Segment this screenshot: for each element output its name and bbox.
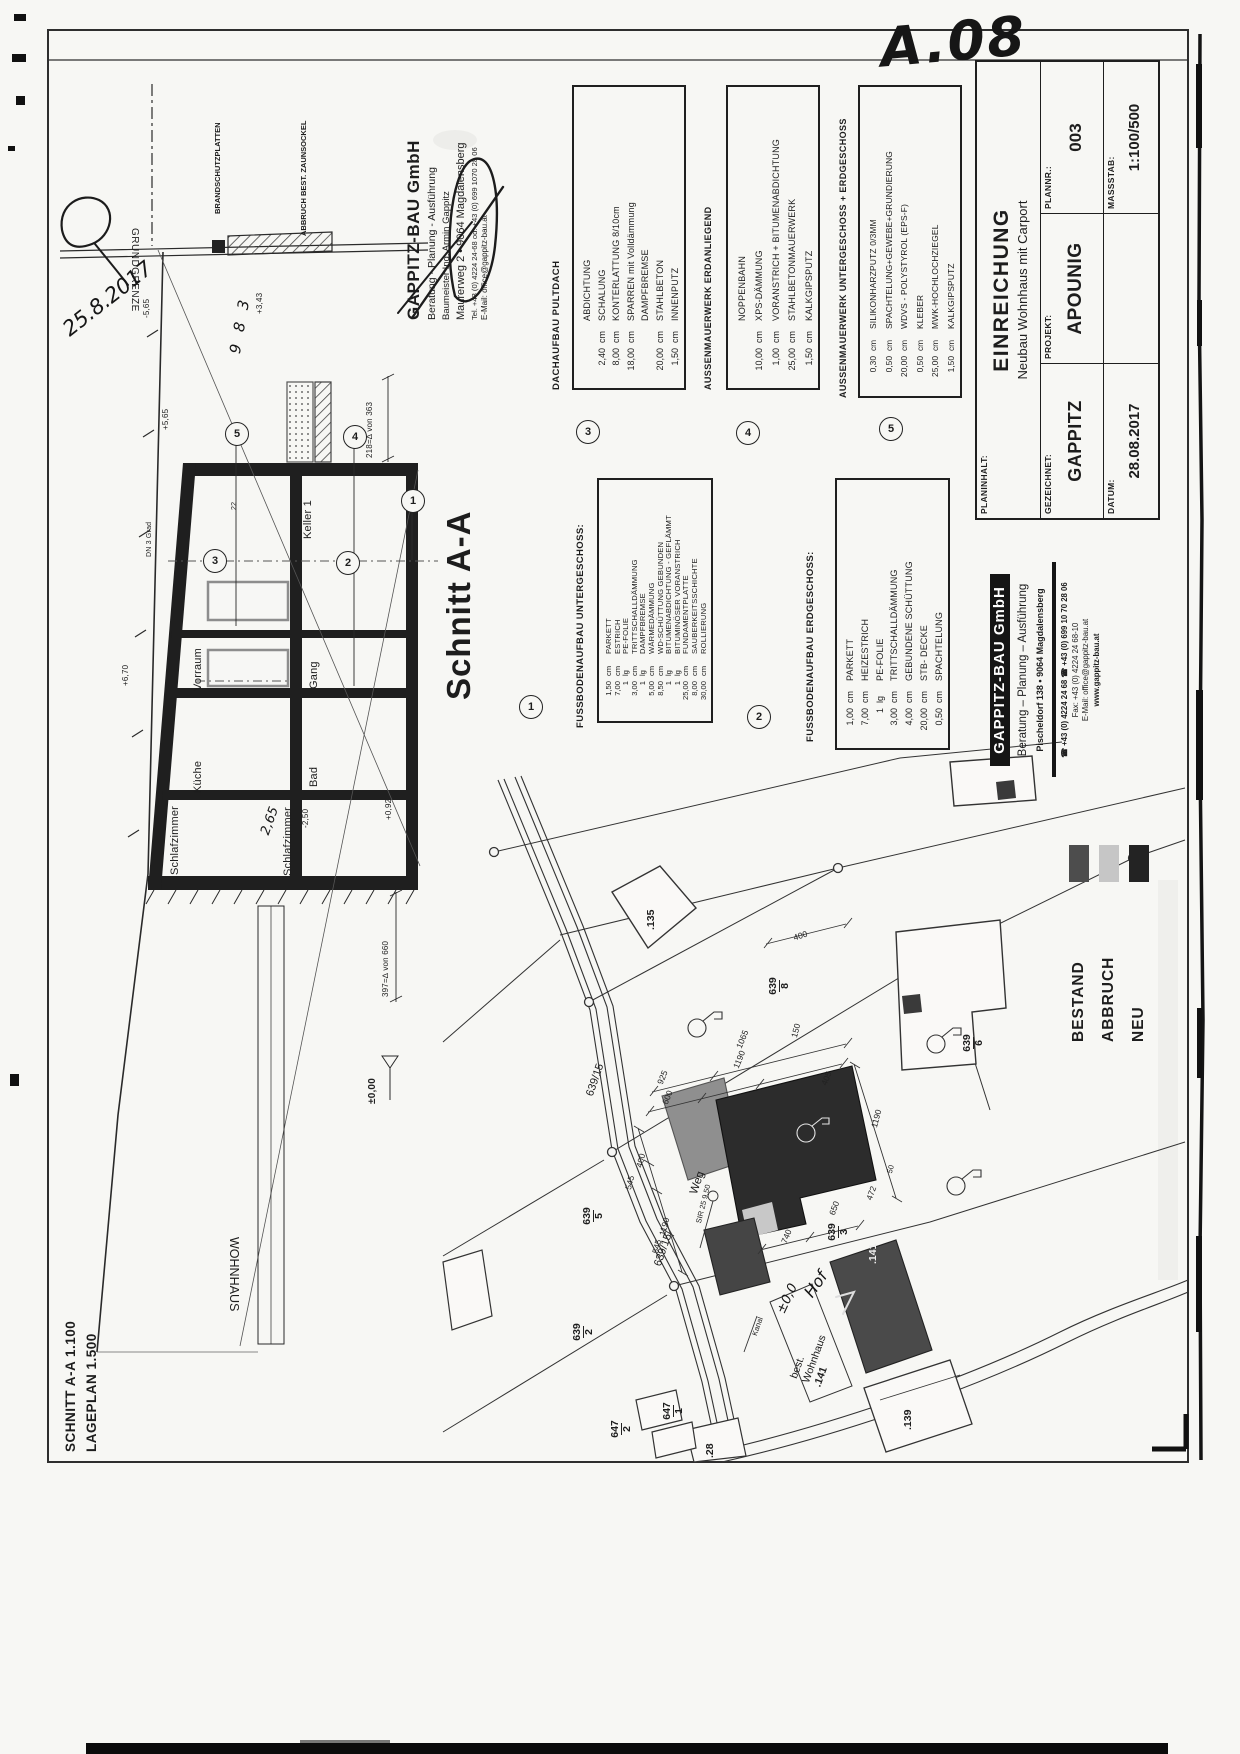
dim-note: 22 bbox=[231, 494, 241, 510]
parcel-639-5: 6395 bbox=[582, 1196, 612, 1236]
specbox-1-heading: FUSSBODENAUFBAU UNTERGESCHOSS: bbox=[576, 476, 591, 728]
dim-note: DN 3 Grad bbox=[146, 502, 156, 557]
spec-item: 1,00cmPARKETT bbox=[843, 486, 858, 738]
planinhalt-label: PLANINHALT: bbox=[980, 455, 989, 514]
projekt-label: PROJEKT: bbox=[1044, 315, 1053, 359]
dim-note: +3,43 bbox=[256, 280, 266, 314]
parcel-647-1: 6471 bbox=[662, 1391, 692, 1431]
titleblock-row2: GEZEICHNET: GAPPITZ PROJEKT: APOUNIG PLA… bbox=[1041, 62, 1104, 518]
legend: BESTAND ABBRUCH NEU bbox=[1064, 845, 1156, 1042]
legend-abbruch-label: ABBRUCH bbox=[1101, 957, 1118, 1042]
gezeichnet-cell: GEZEICHNET: GAPPITZ bbox=[1041, 363, 1103, 518]
marker-1-num: 1 bbox=[410, 495, 416, 507]
spec-item: 20,00cmWDVS - POLYSTYROL (EPS-F) bbox=[897, 93, 913, 386]
spec-item: 1lgPE-FOLIE bbox=[873, 486, 888, 738]
spec-item: NOPPENBAHN bbox=[734, 93, 751, 378]
specbox-2: 1,00cmPARKETT 7,00cmHEIZESTRICH 1lgPE-FO… bbox=[835, 478, 950, 750]
level-note: ±0,00 bbox=[368, 1058, 380, 1104]
parcel-den: 1 bbox=[673, 1405, 685, 1417]
massstab-label: MASSSTAB: bbox=[1107, 156, 1116, 209]
spec-item: 25,00cmSTAHLBETONMAUERWERK bbox=[784, 93, 801, 378]
parcel-den: 5 bbox=[593, 1210, 605, 1222]
legend-neu-label: NEU bbox=[1131, 1006, 1148, 1042]
company-top-line2: Baumeister Ing. Armin Gappitz bbox=[442, 58, 452, 320]
legend-bestand-swatch bbox=[1069, 845, 1089, 882]
parcel-num: 647 bbox=[662, 1402, 673, 1420]
room-label-kueche: Küche bbox=[193, 751, 207, 793]
plannr-label: PLANNR.: bbox=[1044, 166, 1053, 209]
building-label-28: .28 bbox=[705, 1428, 718, 1458]
dim-note: +0,92 bbox=[385, 784, 395, 820]
building-label-141: .141 bbox=[868, 1228, 881, 1264]
section-title: Schnitt A-A bbox=[441, 460, 499, 700]
company-side-line1: Beratung – Planung – Ausführung bbox=[1017, 540, 1029, 800]
company-top-line4: Tel. +43 (0) 4224 24-68 od. +43 (0) 699 … bbox=[471, 58, 479, 320]
parcel-num: 639 bbox=[768, 977, 779, 995]
spec-item: 2,40cmSCHALUNG bbox=[595, 93, 610, 378]
building-label-135: .135 bbox=[646, 894, 659, 930]
room-label-schlafzimmer-2: Schlafzimmer bbox=[283, 800, 297, 876]
company-side-line6: www.gappitz-bau.at bbox=[1093, 540, 1101, 800]
company-side-line4: Fax: +43 (0) 4224 24 68-10 bbox=[1072, 540, 1080, 800]
dim-note: +6,70 bbox=[122, 652, 132, 686]
parcel-den: 2 bbox=[621, 1423, 633, 1435]
corner-note-line2: LAGEPLAN 1.500 bbox=[85, 1274, 100, 1452]
spec-item: 7,00cmESTRICH bbox=[614, 486, 623, 711]
corner-note-line1: SCHNITT A-A 1.100 bbox=[64, 1274, 79, 1452]
specbox-1-marker: 1 bbox=[519, 695, 543, 719]
dim-note: -2,50 bbox=[302, 792, 312, 828]
legend-bestand-label: BESTAND bbox=[1071, 961, 1088, 1042]
spec-item: 7,00cmHEIZESTRICH bbox=[858, 486, 873, 738]
planinhalt-sub: Neubau Wohnhaus mit Carport bbox=[1016, 201, 1030, 380]
legend-abbruch-swatch bbox=[1099, 845, 1119, 882]
specbox-4-marker: 4 bbox=[736, 421, 760, 445]
specbox-2-heading: FUSSBODENAUFBAU ERDGESCHOSS: bbox=[806, 490, 821, 742]
company-side-name: GAPPITZ-BAU GmbH bbox=[990, 574, 1010, 766]
parcel-647-2: 6472 bbox=[610, 1409, 640, 1449]
spec-item: 20,00cmSTAHLBETON bbox=[653, 93, 668, 378]
parcel-den: 3 bbox=[838, 1226, 850, 1238]
spec-item: DAMPFBREMSE bbox=[638, 93, 653, 378]
brandschutz-label: BRANDSCHUTZPLATTEN bbox=[214, 90, 226, 214]
spec-item: 10,00cmXPS-DÄMMUNG bbox=[751, 93, 768, 378]
projekt-value: APOUNIG bbox=[1066, 242, 1087, 334]
spec-item: 0,30cmSILIKONHARZPUTZ 0/3MM bbox=[866, 93, 882, 386]
plannr-value: 003 bbox=[1067, 123, 1085, 151]
specbox-3: ABDICHTUNG 2,40cmSCHALUNG 8,00cmKONTERLA… bbox=[572, 85, 686, 390]
massstab-value: 1:100/500 bbox=[1127, 104, 1143, 172]
dim-note: +5,65 bbox=[162, 394, 172, 430]
dim-note: 397=∆ von 660 bbox=[382, 911, 392, 997]
room-label-vorraum: Vorraum bbox=[193, 643, 207, 691]
parcel-den: 6 bbox=[973, 1037, 985, 1049]
room-label-schlafzimmer-1: Schlafzimmer bbox=[170, 799, 184, 875]
spec-item: 3,00cmTRITTSCHALLDÄMMUNG bbox=[887, 486, 902, 738]
spec-item: ABDICHTUNG bbox=[580, 93, 595, 378]
titleblock-row3: DATUM: 28.08.2017 MASSSTAB: 1:100/500 bbox=[1104, 62, 1158, 518]
specbox-1-num: 1 bbox=[528, 701, 534, 713]
spec-item: 0,50cmSPACHTELUNG+GEWEBE+GRUNDIERUNG bbox=[882, 93, 898, 386]
marker-5: 5 bbox=[225, 422, 249, 446]
specbox-3-marker: 3 bbox=[576, 420, 600, 444]
spec-item: 8,00cmSAUBERKEITSSCHICHTE bbox=[691, 486, 700, 711]
parcel-639-2: 6392 bbox=[572, 1312, 602, 1352]
gezeichnet-value: GAPPITZ bbox=[1066, 400, 1085, 482]
plannr-cell: PLANNR.: 003 bbox=[1041, 62, 1103, 213]
grundgrenze-label: GRUNDGRENZE bbox=[121, 228, 139, 338]
building-139 bbox=[864, 1360, 972, 1452]
parcel-den: 2 bbox=[583, 1326, 595, 1338]
marker-4-num: 4 bbox=[352, 431, 358, 443]
spec-item: 1,00cmVORANSTRICH + BITUMENABDICHTUNG bbox=[768, 93, 785, 378]
parcel-639-8: 6398 bbox=[768, 966, 798, 1006]
company-side-line3: ☎ +43 (0) 4224 24 68 ☎ +43 (0) 699 10 70… bbox=[1061, 540, 1069, 800]
marker-2: 2 bbox=[336, 551, 360, 575]
roof-parapet bbox=[315, 382, 331, 462]
parcel-den: 8 bbox=[779, 980, 791, 992]
company-top-line3: Maurerweg 2 • 9064 Magdalensberg bbox=[456, 58, 468, 320]
marker-3-num: 3 bbox=[212, 555, 218, 567]
datum-label: DATUM: bbox=[1107, 479, 1116, 514]
specbox-5-num: 5 bbox=[888, 423, 894, 435]
title-block: PLANINHALT: EINREICHUNG Neubau Wohnhaus … bbox=[975, 60, 1160, 520]
parcel-num: 639 bbox=[572, 1323, 583, 1341]
spec-item: 8,00cmKONTERLATTUNG 8/10cm bbox=[609, 93, 624, 378]
spec-item: 0,50cmSPACHTELUNG bbox=[932, 486, 947, 738]
spec-item: 1,50cmKALKGIPSPUTZ bbox=[944, 93, 960, 386]
scanned-plan-sheet: A.08 25.8.2017 9 8 3 Schnitt A-A SCHNITT… bbox=[0, 0, 1240, 1754]
gezeichnet-label: GEZEICHNET: bbox=[1044, 454, 1053, 514]
marker-3: 3 bbox=[203, 549, 227, 573]
dim-note: -5,65 bbox=[143, 282, 153, 318]
legend-item-bestand: BESTAND bbox=[1064, 845, 1094, 1042]
marker-1: 1 bbox=[401, 489, 425, 513]
company-side-line5: E-Mail: office@gappitz-bau.at bbox=[1082, 540, 1090, 800]
specbox-3-heading: DACHAUFBAU PULTDACH bbox=[552, 178, 567, 390]
spec-item: 0,50cmKLEBER bbox=[913, 93, 929, 386]
spec-item: 4,00cmGEBUNDENE SCHÜTTUNG bbox=[902, 486, 917, 738]
building-141 bbox=[830, 1240, 932, 1373]
specbox-5: 0,30cmSILIKONHARZPUTZ 0/3MM 0,50cmSPACHT… bbox=[858, 85, 962, 398]
parcel-num: 639 bbox=[962, 1034, 973, 1052]
legend-neu-swatch bbox=[1129, 845, 1149, 882]
specbox-5-heading: AUSSENMAUERWERK UNTERGESCHOSS + ERDGESCH… bbox=[839, 86, 854, 398]
parcel-639-6: 6396 bbox=[962, 1023, 992, 1063]
spec-item: 20,00cmSTB- DECKE bbox=[917, 486, 932, 738]
projekt-cell: PROJEKT: APOUNIG bbox=[1041, 213, 1103, 363]
building-left-partial bbox=[443, 1250, 492, 1330]
spec-item: 25,00cmMWK-HOCHLOCHZIEGEL bbox=[928, 93, 944, 386]
specbox-5-marker: 5 bbox=[879, 417, 903, 441]
planinhalt-value: EINREICHUNG bbox=[991, 201, 1014, 380]
specbox-2-num: 2 bbox=[756, 711, 762, 723]
titleblock-planinhalt: PLANINHALT: EINREICHUNG Neubau Wohnhaus … bbox=[977, 62, 1041, 518]
specbox-4-num: 4 bbox=[745, 427, 751, 439]
abbruch-zaun-label: ABBRUCH BEST. ZAUNSOCKEL bbox=[300, 84, 312, 236]
spec-item: 18,00cmSPARREN mit Volldämmung bbox=[624, 93, 639, 378]
massstab-cell: MASSSTAB: 1:100/500 bbox=[1104, 62, 1158, 213]
dim-note: 218=∆ von 363 bbox=[366, 374, 376, 458]
datum-value: 28.08.2017 bbox=[1127, 403, 1143, 478]
room-label-keller1: Keller 1 bbox=[303, 484, 317, 539]
company-top-line1: Beratung - Planung - Ausführung bbox=[427, 58, 438, 320]
marker-2-num: 2 bbox=[345, 557, 351, 569]
specbox-1: 1,50cmPARKETT 7,00cmESTRICH 1lgPE-FOLIE … bbox=[597, 478, 713, 723]
section-linework bbox=[60, 84, 438, 1352]
marker-4: 4 bbox=[343, 425, 367, 449]
corner-note: SCHNITT A-A 1.100 LAGEPLAN 1.500 bbox=[64, 1274, 118, 1452]
spec-item: 1,50cmKALKGIPSPUTZ bbox=[801, 93, 818, 378]
company-top-name: GAPPITZ-BAU GmbH bbox=[405, 58, 423, 320]
room-label-bad: Bad bbox=[309, 759, 323, 787]
building-label-139: .139 bbox=[903, 1394, 916, 1430]
spec-item: 1,50cmPARKETT bbox=[605, 486, 614, 711]
specbox-4: NOPPENBAHN 10,00cmXPS-DÄMMUNG 1,00cmVORA… bbox=[726, 85, 820, 390]
company-block-top: GAPPITZ-BAU GmbH Beratung - Planung - Au… bbox=[405, 58, 553, 320]
divider-rule bbox=[1052, 563, 1056, 778]
specbox-2-marker: 2 bbox=[747, 705, 771, 729]
section-window bbox=[208, 582, 288, 620]
specbox-4-heading: AUSSENMAUERWERK ERDANLIEGEND bbox=[704, 148, 719, 390]
parcel-639-3: 6393 bbox=[827, 1212, 857, 1252]
company-side-line2: Pischeldorf 138 • 9064 Magdalensberg bbox=[1036, 540, 1046, 800]
spec-item: 30,00cmROLLIERUNG bbox=[700, 486, 709, 711]
parcel-num: 639 bbox=[582, 1207, 593, 1225]
company-block-side: GAPPITZ-BAU GmbH Beratung – Planung – Au… bbox=[988, 540, 1160, 800]
specbox-3-num: 3 bbox=[585, 426, 591, 438]
wohnhaus-label: WOHNHAUS bbox=[218, 1237, 240, 1332]
spec-item: 1,50cmINNENPUTZ bbox=[668, 93, 683, 378]
parcel-num: 639 bbox=[827, 1223, 838, 1241]
room-label-gang: Gang bbox=[309, 655, 323, 689]
marker-5-num: 5 bbox=[234, 428, 240, 440]
parcel-num: 647 bbox=[610, 1420, 621, 1438]
legend-item-neu: NEU bbox=[1124, 845, 1154, 1042]
roof-insulation bbox=[287, 382, 313, 462]
datum-cell: DATUM: 28.08.2017 bbox=[1104, 363, 1158, 518]
legend-item-abbruch: ABBRUCH bbox=[1094, 845, 1124, 1042]
empty-cell bbox=[1104, 213, 1158, 363]
company-top-line5: E-Mail: office@gappitz-bau.at bbox=[481, 58, 490, 320]
